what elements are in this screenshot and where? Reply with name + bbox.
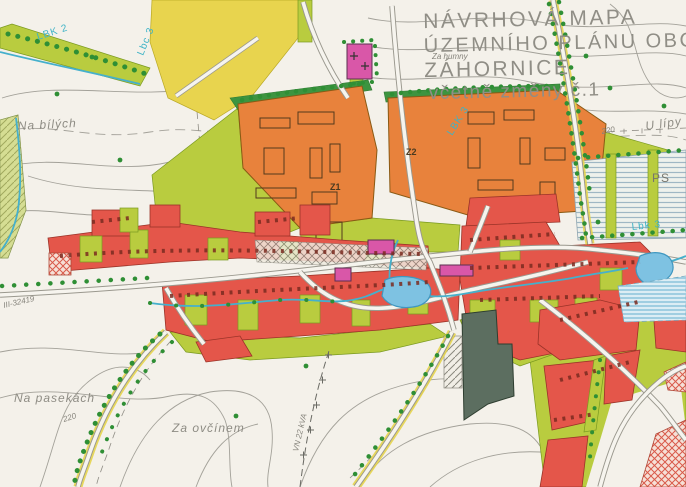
label-na-pasekach: Na pasekách bbox=[14, 391, 95, 405]
label-za-ovcinem: Za ovčínem bbox=[171, 421, 245, 435]
map-canvas: NÁVRHOVÁ MAPA ÚZEMNÍHO PLÁNU OBCE ZÁHORN… bbox=[0, 0, 686, 487]
map-title-line1: NÁVRHOVÁ MAPA bbox=[423, 6, 638, 33]
civic-block-3 bbox=[440, 265, 473, 276]
civic-block-1 bbox=[368, 240, 394, 254]
label-ps: PS bbox=[652, 171, 670, 185]
code-z1: Z1 bbox=[330, 182, 341, 192]
map-title-line4: včetně změny č.1 bbox=[428, 79, 600, 104]
pond-central bbox=[382, 277, 431, 308]
ps-lime-strip-1 bbox=[606, 154, 616, 238]
code-z2: Z2 bbox=[406, 147, 417, 157]
housing-se-4 bbox=[540, 436, 588, 487]
scanned-zoning-map: NÁVRHOVÁ MAPA ÚZEMNÍHO PLÁNU OBCE ZÁHORN… bbox=[0, 0, 686, 487]
proposed-housing-west bbox=[49, 253, 71, 275]
label-za-humny: Za humny bbox=[431, 52, 469, 61]
civic-block-2 bbox=[335, 268, 351, 281]
cemetery bbox=[347, 44, 372, 79]
